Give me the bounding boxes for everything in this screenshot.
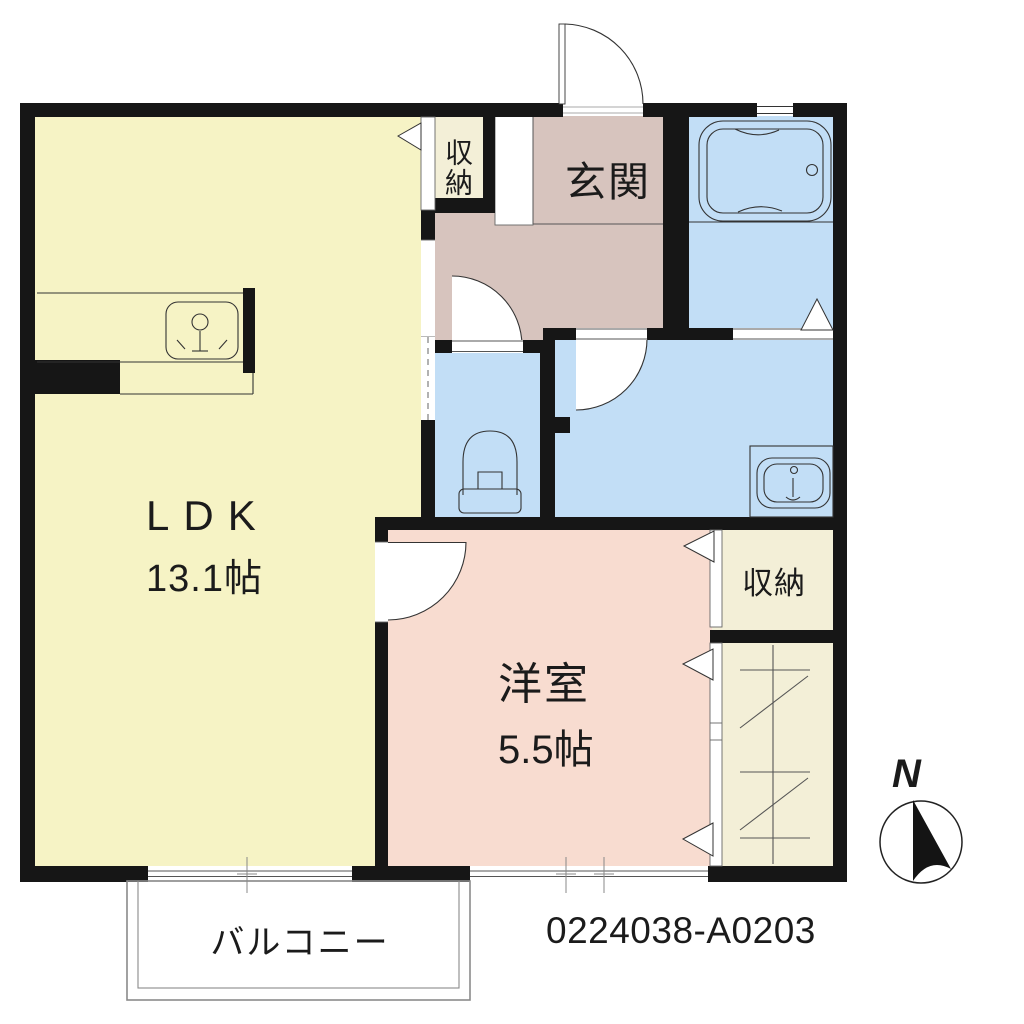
room-name: LDK <box>146 492 270 539</box>
room-label-entrance: 玄関 <box>565 148 651 208</box>
entrance-door <box>559 24 643 116</box>
north-compass <box>880 800 962 883</box>
room-toilet <box>433 340 543 517</box>
property-code: 0224038-A0203 <box>546 910 816 952</box>
shoe-cabinet <box>495 115 533 225</box>
room-label-storage-bedroom: 収納 <box>742 558 806 603</box>
floor-plan: LDK 13.1帖 洋室 5.5帖 玄関 収納 収納 バルコニー 0224038… <box>0 0 1024 1024</box>
room-label-western: 洋室 5.5帖 <box>498 648 594 775</box>
north-label: N <box>892 752 921 797</box>
room-name: 洋室 <box>498 660 590 709</box>
room-label-ldk: LDK 13.1帖 <box>146 492 270 602</box>
room-area: 5.5帖 <box>498 717 594 775</box>
ldk-hall-opening <box>421 240 435 337</box>
bath-window <box>757 104 793 116</box>
room-label-balcony: バルコニー <box>203 915 397 964</box>
room-label-storage-entrance: 収納 <box>430 124 484 212</box>
room-area: 13.1帖 <box>146 547 270 602</box>
